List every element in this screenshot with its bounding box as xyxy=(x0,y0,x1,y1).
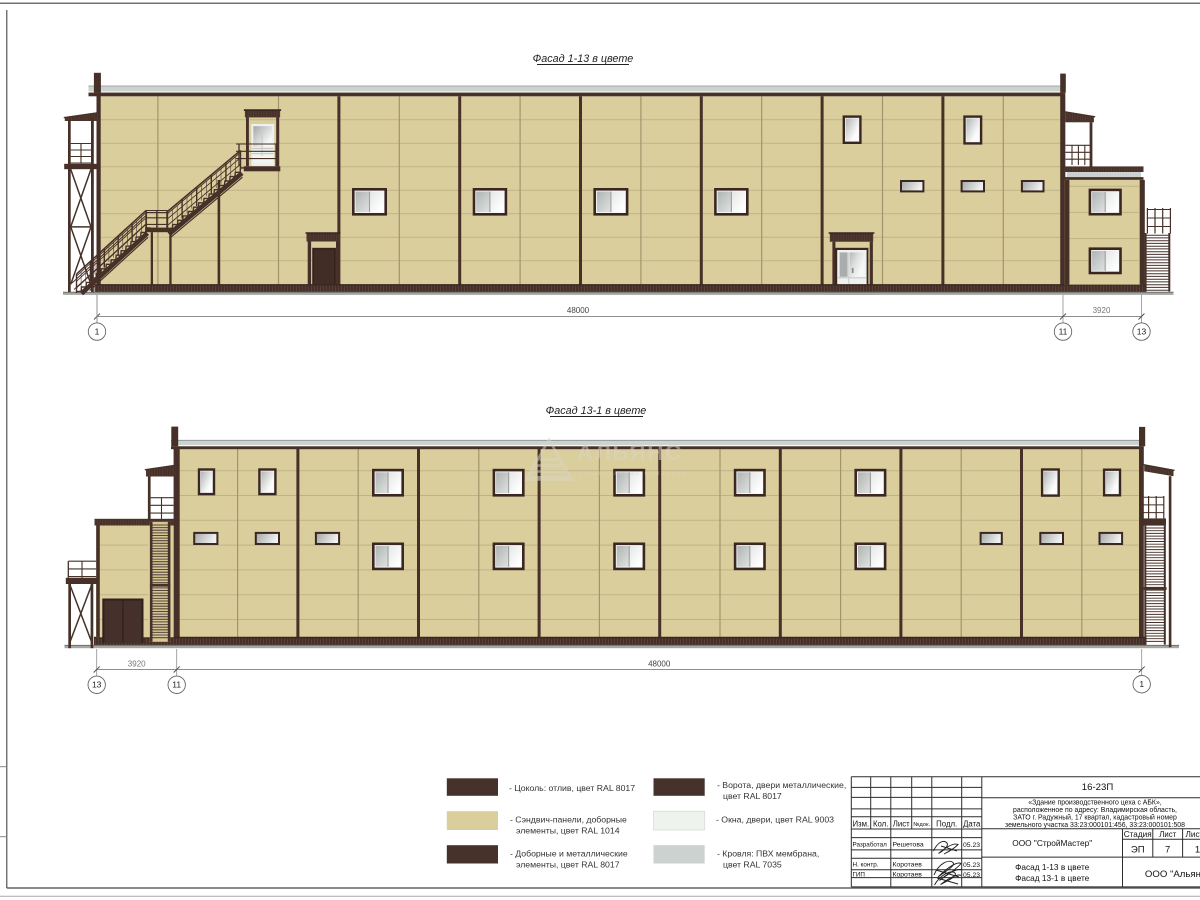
svg-text:цвет RAL 7035: цвет RAL 7035 xyxy=(723,860,782,870)
svg-text:Фасад 13-1 в цвете: Фасад 13-1 в цвете xyxy=(1015,873,1090,883)
svg-text:- Кровля: ПВХ мембрана,: - Кровля: ПВХ мембрана, xyxy=(717,849,819,859)
svg-text:- Окна, двери, цвет RAL 9003: - Окна, двери, цвет RAL 9003 xyxy=(716,815,834,825)
svg-text:1: 1 xyxy=(1139,679,1144,689)
svg-text:Листов: Листов xyxy=(1186,830,1200,839)
svg-text:ЭП: ЭП xyxy=(1131,845,1145,856)
svg-text:- Ворота, двери металлические,: - Ворота, двери металлические, xyxy=(717,780,846,790)
svg-text:48000: 48000 xyxy=(648,659,671,668)
svg-text:05.23: 05.23 xyxy=(963,862,980,869)
svg-text:11: 11 xyxy=(172,680,181,690)
svg-text:Разработал: Разработал xyxy=(853,841,888,849)
svg-text:- Сэндвич-панели, доборные: - Сэндвич-панели, доборные xyxy=(510,815,627,825)
svg-text:05.23: 05.23 xyxy=(963,842,980,849)
svg-text:Лист: Лист xyxy=(893,819,910,828)
svg-text:3920: 3920 xyxy=(1093,306,1111,315)
svg-text:11: 11 xyxy=(1059,327,1068,337)
svg-text:7: 7 xyxy=(1165,845,1170,856)
svg-text:№док.: №док. xyxy=(913,822,930,828)
svg-text:Фасад 13-1 в цвете: Фасад 13-1 в цвете xyxy=(546,405,647,417)
svg-text:1: 1 xyxy=(95,327,100,337)
svg-text:ЗАТО г. Радужный, 17 квартал,: ЗАТО г. Радужный, 17 квартал, кадастровы… xyxy=(1013,814,1177,822)
svg-text:Решетова: Решетова xyxy=(893,842,924,849)
svg-text:16-23П: 16-23П xyxy=(1082,782,1114,793)
svg-text:Коротаев: Коротаев xyxy=(893,871,923,878)
svg-text:элементы, цвет RAL 1014: элементы, цвет RAL 1014 xyxy=(516,826,620,836)
svg-text:1: 1 xyxy=(1195,845,1200,856)
svg-text:Подл.: Подл. xyxy=(936,819,957,828)
svg-text:48000: 48000 xyxy=(567,306,590,315)
svg-text:ГИП: ГИП xyxy=(853,871,866,878)
svg-text:Фасад 1-13 в цвете: Фасад 1-13 в цвете xyxy=(533,53,634,65)
svg-text:строительная компания: строительная компания xyxy=(578,470,688,477)
svg-text:Изм.: Изм. xyxy=(852,819,869,828)
svg-text:13: 13 xyxy=(1137,327,1147,337)
svg-text:Стадия: Стадия xyxy=(1124,830,1152,839)
svg-text:3920: 3920 xyxy=(128,659,146,668)
svg-text:Дата: Дата xyxy=(963,819,981,828)
svg-text:расположенное по адресу: Влади: расположенное по адресу: Владимирская об… xyxy=(1013,806,1177,814)
svg-text:Н. контр.: Н. контр. xyxy=(853,861,879,868)
svg-text:Фасад 1-13 в цвете: Фасад 1-13 в цвете xyxy=(1015,862,1090,872)
svg-text:АЛЬЯНС: АЛЬЯНС xyxy=(577,440,683,465)
svg-text:элементы, цвет RAL 8017: элементы, цвет RAL 8017 xyxy=(516,860,620,870)
svg-text:- Цоколь: отлив, цвет RAL 8017: - Цоколь: отлив, цвет RAL 8017 xyxy=(509,783,635,793)
svg-text:- Доборные и металлические: - Доборные и металлические xyxy=(510,849,628,859)
svg-text:Лист: Лист xyxy=(1159,830,1176,839)
svg-text:13: 13 xyxy=(92,680,102,690)
svg-text:земельного участка 33:23:00010: земельного участка 33:23:000101:456, 33:… xyxy=(1005,822,1185,829)
svg-text:ООО "СтройМастер": ООО "СтройМастер" xyxy=(1012,838,1092,848)
svg-text:05.23: 05.23 xyxy=(963,872,980,879)
svg-text:«Здание производственного цеха: «Здание производственного цеха с АБК», xyxy=(1028,800,1161,807)
svg-text:Кол.: Кол. xyxy=(873,819,888,828)
svg-text:Коротаев: Коротаев xyxy=(893,861,923,868)
svg-text:цвет RAL 8017: цвет RAL 8017 xyxy=(723,791,782,801)
svg-text:ООО "Альянс": ООО "Альянс" xyxy=(1145,869,1200,880)
